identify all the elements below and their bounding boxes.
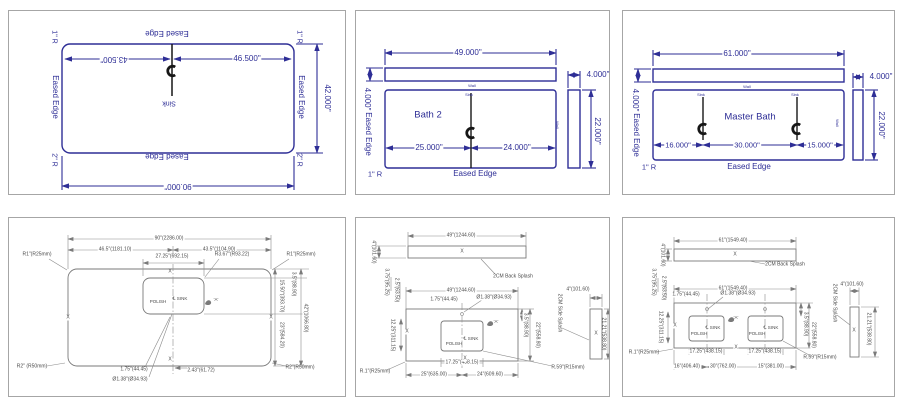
dim-right-top-label: 3.5"(88.90): [291, 272, 296, 297]
dim-hole-diameter-label: Ø1.38"(Ø34.93): [111, 378, 148, 383]
dim-sink2-width-label: 17.25"(438.15): [748, 350, 783, 355]
dim-right-sink-label: 15.50"(393.70): [279, 279, 284, 314]
dim-total-width-label: 90"(2286.00): [154, 237, 185, 242]
edge-polish-mark-backsplash: X: [732, 253, 737, 258]
panel-island-shop-drawing: 90"(2286.00) 46.5"(1181.10) 43.5"(1104.9…: [8, 217, 346, 397]
wall-right-label: Wall: [835, 119, 839, 127]
eased-edge-right-label: Eased Edge: [297, 75, 305, 119]
eased-edge-bottom-label: Eased Edge: [727, 163, 771, 171]
corner-radius-tr-label: R1"(R25mm): [287, 253, 316, 258]
dim-bottom-mid-label: 30"(762.00): [709, 365, 737, 370]
eased-edge-left-label: Eased Edge: [364, 112, 372, 156]
edge-polish-mark-left: X: [404, 330, 409, 335]
dim-side-splash-width-label: 4"(101.60): [839, 283, 864, 288]
dim-hole-diameter-label: Ø1.38"(Ø34.93): [475, 296, 512, 301]
dim-bottom-right-label: 15"(381.00): [757, 365, 785, 370]
sink-centerline-label: ℄ SINK: [464, 337, 479, 342]
side-splash-callout-label: 2CM Side Splash: [557, 294, 562, 333]
corner-radius-br-label: 2" R: [296, 153, 303, 166]
dim-backsplash-height-label: 4.000": [631, 89, 639, 112]
dim-bottom-left-label: 16"(406.40): [673, 365, 701, 370]
backsplash-callout-label: 2CM Back Splash: [765, 263, 805, 268]
corner-radius-tl-label: 1" R: [51, 30, 58, 43]
bath2-plan-linework: [356, 11, 609, 194]
dim-bottom-left-label: 25"(635.00): [420, 373, 448, 378]
edge-polish-mark-side-splash: X: [851, 329, 856, 334]
dim-side-splash-width-label: 4.000": [587, 71, 610, 79]
dim-right2-label: 22"(558.80): [535, 321, 540, 349]
dim-top-label: 61.000": [722, 50, 751, 58]
sink-centerline-label: Sink: [465, 93, 473, 97]
wall-top-label: Wall: [743, 85, 751, 89]
dim-sink1-width-label: 17.25"(438.15): [689, 350, 724, 355]
sink-centerline-label: ℄ SINK: [173, 297, 188, 302]
dim-left1-label: 3.75"(95.25): [384, 268, 389, 295]
corner-radius-bl-label: R2" (R50mm): [17, 365, 47, 370]
dim-left3-label: 12.25"(311.15): [658, 310, 663, 345]
sink-radius-br-label: R.59"(R15mm): [803, 356, 836, 361]
dim-left2-label: 2.5"(63.50): [394, 278, 399, 303]
sink1-centerline-label: Sink: [697, 93, 705, 97]
detail-a-label: 'A': [494, 320, 499, 325]
dim-sink-width-label: 27.25"(692.15): [155, 255, 190, 260]
edge-polish-mark-left: X: [65, 316, 70, 321]
panel-bath2-plan: 49.000" 4.000" Eased Edge Bath 2 Wall Si…: [355, 10, 610, 195]
polish1-label: POLISH: [691, 332, 708, 337]
dim-seg-left-label: 46.5"(1181.10): [98, 248, 133, 253]
dim-side-splash-width-label: 4"(101.60): [566, 288, 589, 293]
panel-master-bath-shop-drawing: 61"(1549.40) 4"(101.60) 2CM Back Splash …: [622, 217, 895, 397]
dim-faucet-offset-label: 1.75"(44.45): [429, 298, 458, 303]
edge-polish-mark-bottom: X: [462, 357, 467, 362]
dim-left3-label: 12.25"(311.15): [390, 318, 395, 353]
wall-right-label: Wall: [555, 121, 559, 129]
sink1-centerline-label: ℄ SINK: [706, 326, 721, 331]
eased-edge-top-label: Eased Edge: [145, 29, 189, 37]
dim-hole-offset-label: 2.43"(61.72): [186, 369, 215, 374]
dim-side-splash-width-label: 4.000": [870, 73, 893, 81]
dim-right-total-label: 42"(1066.80): [303, 303, 308, 334]
corner-radius-label: 1" R: [368, 170, 382, 178]
dim-backsplash-height-label: 4"(101.60): [660, 243, 665, 266]
dim-right1-label: 3.5"(88.90): [803, 311, 808, 338]
dim-right-bottom-label: 23"(584.20): [279, 321, 284, 349]
edge-polish-mark-left: X: [672, 324, 677, 329]
detail-a-label: 'A': [214, 298, 219, 303]
dim-left-sink-offset: 43.500": [99, 55, 128, 63]
dim-faucet-offset-label: 1.75"(44.45): [119, 368, 148, 373]
dim-bottom-left-label: 16.000": [664, 141, 692, 149]
dim-bottom-mid-label: 30.000": [733, 141, 761, 149]
dim-backsplash-width-label: 49"(1244.60): [446, 234, 477, 239]
dim-depth-label: 42.000": [323, 84, 331, 111]
dim-side-splash-height-label: 21.21"(538.80): [866, 313, 871, 346]
dim-backsplash-height-label: 4"(101.60): [371, 240, 376, 263]
room-name-label: Master Bath: [724, 112, 775, 122]
polish-label: POLISH: [446, 342, 463, 347]
eased-edge-bottom-label: Eased Edge: [453, 170, 497, 178]
sink-radius-br-label: R.59"(R15mm): [551, 366, 584, 371]
corner-radius-bl-label: R.1"(R25mm): [629, 351, 659, 356]
eased-edge-left-label: Eased Edge: [632, 113, 640, 157]
edge-polish-mark-bottom: X: [167, 358, 172, 363]
corner-radius-br-label: R2"(R50mm): [286, 366, 315, 371]
countertop-drawing-sheet: Eased Edge 1" R 1" R 2" R 2" R 43.500" 4…: [0, 0, 904, 407]
dim-depth-label: 22.000": [593, 117, 601, 144]
dim-left2-label: 2.5"(63.50): [661, 276, 666, 301]
backsplash-callout-label: 2CM Back Splash: [493, 275, 533, 280]
polish2-label: POLISH: [749, 332, 766, 337]
corner-radius-tl-label: R1"(R25mm): [23, 253, 52, 258]
dim-hole-diameter-label: Ø1.38"(Ø34.93): [719, 292, 756, 297]
dim-side-splash-height-label: 21.21"(538.80): [601, 318, 606, 351]
dim-sink-right-label: 24.000": [502, 144, 531, 152]
dim-right1-label: 3.5"(88.90): [523, 312, 528, 339]
corner-radius-bl-label: R.1"(R25mm): [360, 370, 390, 375]
corner-radius-label: 1" R: [642, 163, 656, 171]
sink-corner-radius-label: R3.67"(R93.22): [215, 253, 250, 258]
dim-backsplash-width-label: 61"(1549.40): [718, 239, 749, 244]
corner-radius-tr-label: 1" R: [296, 30, 303, 43]
dim-left1-label: 3.75"(95.25): [651, 268, 656, 295]
dim-faucet-offset-label: 1.75"(44.45): [671, 293, 700, 298]
dim-width-label: 90.000": [163, 182, 192, 190]
dim-top-label: 49.000": [453, 49, 482, 57]
detail-a-label: 'A': [734, 316, 739, 321]
dim-backsplash-height-label: 4.000": [363, 88, 371, 111]
wall-top-label: Wall: [468, 84, 476, 88]
sink-centerline-label: Sink: [162, 100, 176, 107]
side-splash-callout-label: 2CM Side Splash: [832, 284, 837, 323]
dim-right2-label: 22"(558.80): [811, 321, 816, 349]
panel-bath2-shop-drawing: 49"(1244.60) 4"(101.60) 2CM Back Splash …: [355, 217, 610, 397]
dim-bottom-right-label: 24"(609.60): [476, 373, 504, 378]
panel-master-bath-plan: 61.000" 4.000" Eased Edge Master Bath Wa…: [622, 10, 895, 195]
panel-island-plan: Eased Edge 1" R 1" R 2" R 2" R 43.500" 4…: [8, 10, 346, 195]
sink2-centerline-label: Sink: [791, 93, 799, 97]
dim-bottom-right-label: 15.000": [806, 141, 834, 149]
edge-polish-mark-side-splash: X: [593, 332, 598, 337]
dim-right-sink-offset: 46.500": [232, 55, 261, 63]
dim-top-label: 49"(1244.60): [446, 289, 477, 294]
room-name-label: Bath 2: [414, 110, 441, 120]
eased-edge-bottom-label: Eased Edge: [145, 152, 189, 160]
eased-edge-left-label: Eased Edge: [51, 75, 59, 119]
edge-polish-mark-right: X: [268, 316, 273, 321]
dim-sink-left-label: 25.000": [414, 144, 443, 152]
edge-polish-mark-top: X: [167, 270, 172, 275]
edge-polish-mark-backsplash: X: [459, 250, 464, 255]
corner-radius-bl-label: 2" R: [51, 153, 58, 166]
polish-label: POLISH: [150, 300, 167, 305]
edge-polish-mark-bottom: X: [733, 346, 738, 351]
dim-depth-label: 22.000": [877, 111, 885, 138]
sink2-centerline-label: ℄ SINK: [764, 326, 779, 331]
